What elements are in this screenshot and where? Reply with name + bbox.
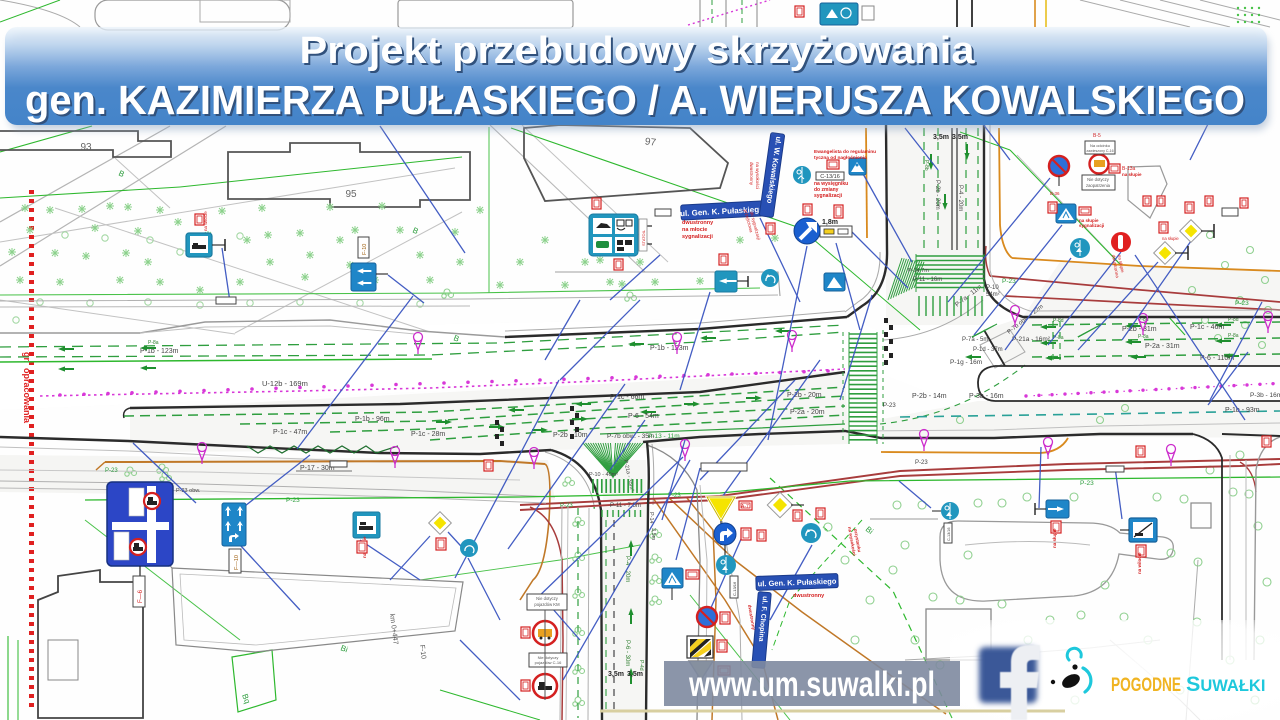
- svg-text:P-4d: P-4d: [638, 660, 644, 671]
- svg-text:3,5m: 3,5m: [627, 671, 643, 678]
- svg-text:zaopatrzenia: zaopatrzenia: [1086, 183, 1111, 188]
- svg-text:gen. KAZIMIERZA PUŁASKIEGO / A: gen. KAZIMIERZA PUŁASKIEGO / A. WIERUSZA…: [25, 77, 1245, 123]
- svg-text:P-1d - 37m: P-1d - 37m: [973, 347, 1003, 353]
- svg-text:na słupie: na słupie: [1162, 236, 1179, 241]
- svg-text:P-1c - 46m: P-1c - 46m: [1190, 324, 1224, 331]
- svg-text:P-10: P-10: [986, 285, 999, 291]
- svg-text:Ewangelista do regulaminu: Ewangelista do regulaminu: [814, 149, 876, 155]
- svg-text:P-8a: P-8a: [1228, 333, 1239, 339]
- svg-text:P-2b - 14m: P-2b - 14m: [912, 393, 947, 400]
- svg-text:P-23: P-23: [560, 503, 573, 509]
- svg-text:P-23: P-23: [1235, 300, 1249, 307]
- svg-text:P-8b: P-8b: [923, 160, 929, 171]
- svg-text:Nie dotyczy: Nie dotyczy: [536, 596, 559, 601]
- svg-text:3,5m: 3,5m: [650, 528, 656, 541]
- svg-text:1,8m: 1,8m: [822, 219, 838, 226]
- svg-text:sygnalizacji: sygnalizacji: [1079, 223, 1104, 228]
- svg-text:P-2b - 20m: P-2b - 20m: [934, 180, 940, 210]
- svg-text:P-8a: P-8a: [148, 340, 159, 346]
- svg-text:P-11 - 7,5m: P-11 - 7,5m: [610, 503, 641, 509]
- svg-text:POGODNE: POGODNE: [1111, 675, 1181, 696]
- svg-text:sygnalizacji: sygnalizacji: [814, 193, 843, 199]
- svg-text:F-10: F-10: [362, 244, 368, 255]
- svg-text:P-21a - 16m²: P-21a - 16m²: [1012, 336, 1051, 343]
- svg-text:P-14: P-14: [648, 512, 654, 524]
- svg-text:C-13/16: C-13/16: [947, 527, 951, 541]
- svg-text:P-3b - 16m: P-3b - 16m: [969, 393, 1004, 400]
- svg-text:F—10: F—10: [234, 555, 240, 570]
- svg-text:C-13/16: C-13/16: [820, 174, 840, 180]
- svg-text:A-7: A-7: [741, 504, 749, 510]
- svg-text:P-23: P-23: [915, 460, 928, 466]
- svg-text:na wilocie: na wilocie: [203, 211, 208, 231]
- svg-text:F—6: F—6: [138, 589, 144, 603]
- svg-text:P-8d: P-8d: [1053, 318, 1064, 324]
- svg-text:tyczna od nagłośnienia: tyczna od nagłośnienia: [814, 155, 867, 161]
- svg-text:pojazdów KM: pojazdów KM: [534, 602, 560, 607]
- svg-text:zawieszony C-16: zawieszony C-16: [1086, 149, 1113, 153]
- svg-text:P-2a - 31m: P-2a - 31m: [1145, 343, 1180, 350]
- svg-text:P-1b - 96m: P-1b - 96m: [355, 416, 390, 423]
- svg-text:pojazdów C-16: pojazdów C-16: [535, 660, 562, 665]
- svg-text:B-36: B-36: [1050, 191, 1060, 196]
- svg-text:dwustronny: dwustronny: [749, 162, 754, 186]
- svg-text:P-23: P-23: [1080, 480, 1094, 487]
- svg-text:P-1c - 28m: P-1c - 28m: [411, 431, 445, 438]
- svg-text:C-13/16: C-13/16: [732, 581, 737, 596]
- svg-text:P-23: P-23: [1002, 278, 1016, 285]
- svg-text:na wilocie: na wilocie: [1137, 552, 1142, 574]
- svg-text:P-4 - 20m: P-4 - 20m: [957, 185, 963, 211]
- svg-text:P-7a - 5m: P-7a - 5m: [962, 337, 988, 343]
- svg-text:P-1b - 93m: P-1b - 93m: [1225, 407, 1260, 414]
- svg-text:P-1g - 16m: P-1g - 16m: [950, 359, 982, 366]
- svg-text:P-1c - 47m: P-1c - 47m: [273, 429, 307, 436]
- svg-text:P-14 7m: P-14 7m: [908, 268, 929, 274]
- svg-text:na słupie: na słupie: [1122, 172, 1142, 177]
- svg-text:na słupie: na słupie: [1052, 528, 1057, 548]
- svg-text:dwustronny: dwustronny: [793, 593, 825, 599]
- svg-text:3,5m: 3,5m: [608, 671, 624, 678]
- svg-text:na młocie: na młocie: [682, 227, 707, 233]
- svg-text:opracowania: opracowania: [22, 368, 32, 424]
- svg-text:P-23 obw.: P-23 obw.: [176, 488, 201, 494]
- svg-text:P-6 - 30m: P-6 - 30m: [624, 640, 630, 666]
- svg-text:P-23: P-23: [105, 468, 118, 474]
- svg-text:P-23: P-23: [883, 403, 896, 409]
- svg-text:Projekt przebudowy skrzyżowani: Projekt przebudowy skrzyżowania: [300, 30, 976, 72]
- svg-text:STATOIL: STATOIL: [641, 229, 646, 246]
- svg-text:P-1b - 123m: P-1b - 123m: [650, 345, 689, 352]
- svg-text:P-6 - 54m: P-6 - 54m: [628, 413, 659, 420]
- svg-text:93: 93: [80, 142, 92, 153]
- svg-text:na wysokości: na wysokości: [755, 162, 760, 189]
- svg-text:95: 95: [345, 189, 357, 200]
- svg-text:3,5m: 3,5m: [933, 134, 949, 141]
- svg-text:97: 97: [644, 136, 657, 149]
- svg-text:P-10 - 40m²: P-10 - 40m²: [589, 472, 618, 478]
- svg-text:Na odcinku: Na odcinku: [1090, 143, 1110, 148]
- svg-text:3,5m: 3,5m: [952, 134, 968, 141]
- svg-text:P-11 - 16m: P-11 - 16m: [913, 277, 942, 283]
- svg-text:54m²: 54m²: [986, 292, 1000, 298]
- svg-text:sygnalizacji: sygnalizacji: [682, 234, 713, 240]
- svg-text:P-2a - 20m: P-2a - 20m: [790, 409, 825, 416]
- svg-text:dwustronny: dwustronny: [682, 220, 714, 226]
- svg-text:P-3b - 16m: P-3b - 16m: [1250, 392, 1280, 399]
- svg-text:B-5: B-5: [1093, 133, 1101, 139]
- svg-text:P-23: P-23: [286, 497, 300, 504]
- svg-text:Nie dotyczy: Nie dotyczy: [1087, 177, 1110, 182]
- svg-text:www.um.suwalki.pl: www.um.suwalki.pl: [688, 665, 935, 704]
